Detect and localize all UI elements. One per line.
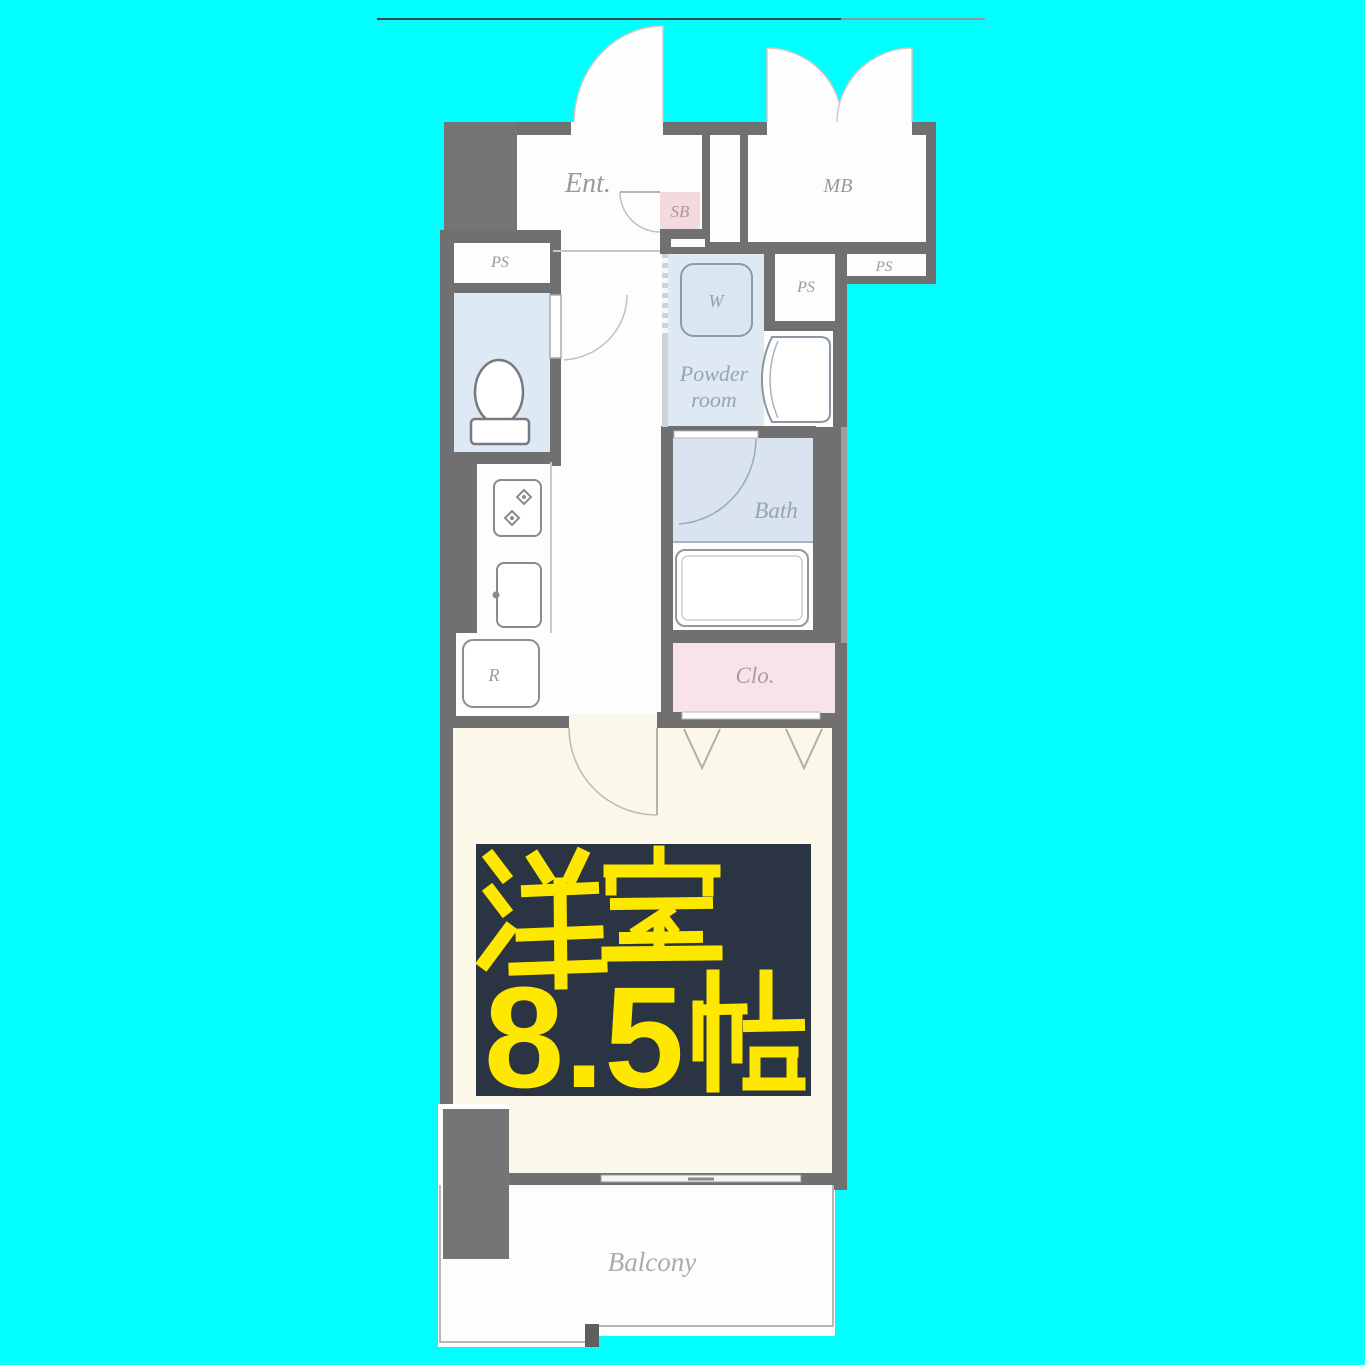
- svg-text:Powder: Powder: [679, 361, 749, 386]
- svg-text:R: R: [488, 665, 500, 685]
- svg-text:Balcony: Balcony: [608, 1247, 696, 1277]
- svg-text:PS: PS: [875, 259, 893, 275]
- svg-text:SB: SB: [671, 202, 691, 221]
- svg-text:Clo.: Clo.: [736, 663, 775, 688]
- svg-text:W: W: [709, 291, 726, 311]
- svg-text:Ent.: Ent.: [564, 168, 611, 199]
- svg-text:PS: PS: [796, 279, 815, 296]
- svg-text:room: room: [691, 387, 737, 412]
- svg-text:Bath: Bath: [754, 498, 797, 523]
- svg-text:MB: MB: [823, 175, 853, 197]
- svg-text:PS: PS: [490, 254, 509, 271]
- svg-text:8.5: 8.5: [484, 957, 684, 1118]
